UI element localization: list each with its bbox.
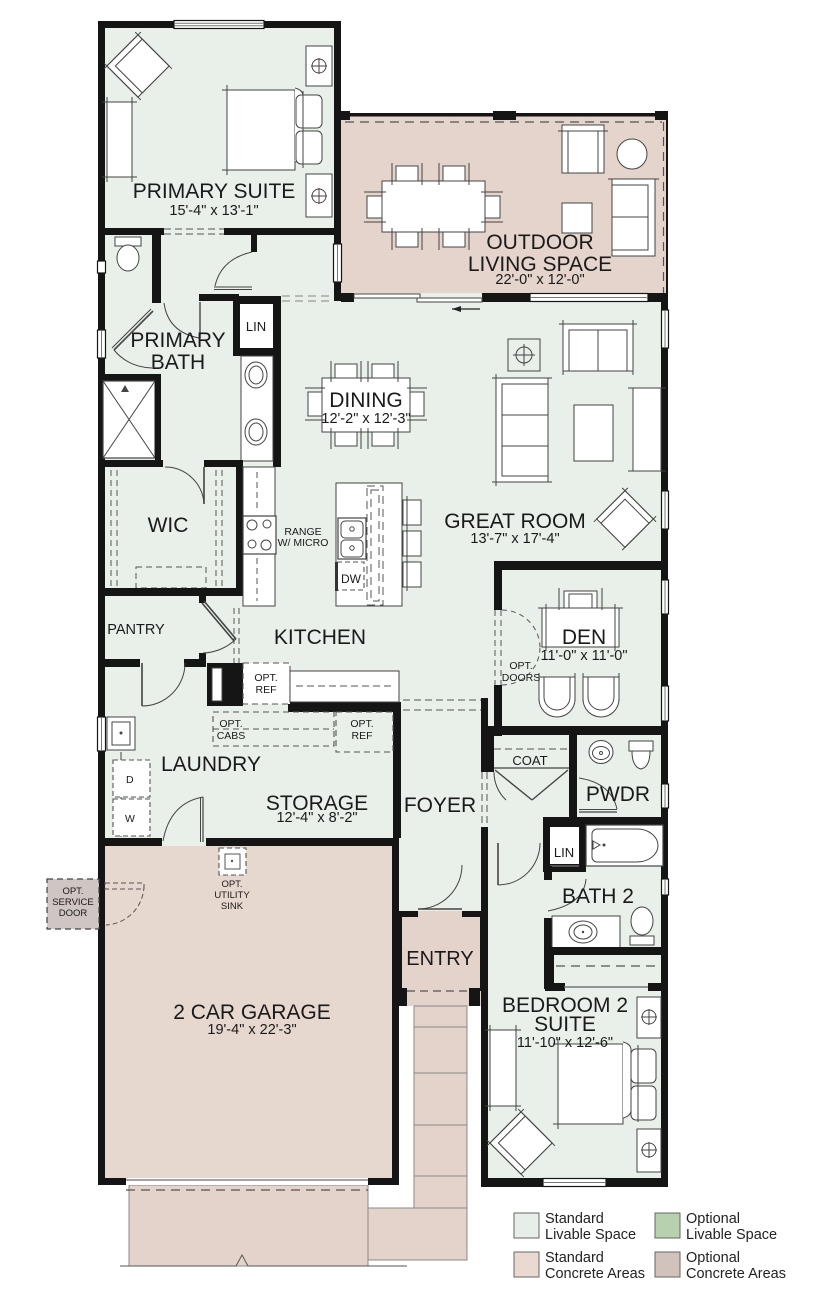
svg-text:OPT.: OPT. (62, 886, 83, 897)
svg-text:LIN: LIN (554, 845, 574, 860)
svg-text:PANTRY: PANTRY (107, 622, 165, 638)
svg-text:OPT.: OPT. (350, 718, 373, 730)
svg-text:OPT.: OPT. (254, 672, 277, 684)
svg-text:BATH: BATH (151, 351, 205, 374)
svg-text:ENTRY: ENTRY (406, 948, 473, 970)
svg-text:Concrete Areas: Concrete Areas (545, 1266, 645, 1282)
svg-text:Standard: Standard (545, 1211, 604, 1227)
svg-text:19'-4" x 22'-3": 19'-4" x 22'-3" (207, 1022, 296, 1038)
svg-text:2 CAR GARAGE: 2 CAR GARAGE (173, 1001, 331, 1024)
svg-text:DOOR: DOOR (59, 908, 88, 919)
svg-text:SERVICE: SERVICE (52, 897, 94, 908)
svg-text:PRIMARY: PRIMARY (130, 329, 225, 352)
svg-text:KITCHEN: KITCHEN (274, 626, 366, 649)
svg-text:Livable Space: Livable Space (686, 1227, 777, 1243)
svg-text:DINING: DINING (329, 389, 403, 412)
svg-text:13'-7" x 17'-4": 13'-7" x 17'-4" (470, 531, 559, 547)
svg-text:11'-0" x 11'-0": 11'-0" x 11'-0" (540, 648, 627, 664)
svg-text:LIN: LIN (246, 319, 266, 334)
svg-text:15'-4" x 13'-1": 15'-4" x 13'-1" (169, 203, 258, 219)
svg-text:Optional: Optional (686, 1211, 740, 1227)
svg-text:DW: DW (341, 572, 362, 586)
svg-text:W/ MICRO: W/ MICRO (278, 537, 329, 549)
svg-text:COAT: COAT (512, 753, 547, 768)
svg-text:UTILITY: UTILITY (214, 890, 250, 901)
svg-text:Optional: Optional (686, 1250, 740, 1266)
svg-text:WIC: WIC (148, 514, 189, 537)
svg-text:22'-0" x 12'-0": 22'-0" x 12'-0" (495, 272, 584, 288)
svg-text:D: D (126, 774, 134, 786)
svg-text:REF: REF (352, 730, 373, 742)
svg-text:Concrete Areas: Concrete Areas (686, 1266, 786, 1282)
svg-text:GREAT ROOM: GREAT ROOM (444, 510, 586, 533)
svg-text:Livable Space: Livable Space (545, 1227, 636, 1243)
svg-text:FOYER: FOYER (404, 794, 476, 817)
svg-text:12'-4" x 8'-2": 12'-4" x 8'-2" (276, 810, 357, 826)
svg-text:W: W (125, 813, 135, 825)
svg-text:DEN: DEN (562, 626, 606, 649)
svg-text:PRIMARY SUITE: PRIMARY SUITE (133, 180, 296, 203)
svg-text:OPT.: OPT. (509, 660, 532, 672)
svg-text:OPT.: OPT. (219, 718, 242, 730)
svg-text:11'-10" x 12'-6": 11'-10" x 12'-6" (517, 1035, 613, 1051)
svg-text:BATH 2: BATH 2 (562, 885, 634, 908)
svg-text:12'-2" x 12'-3": 12'-2" x 12'-3" (321, 411, 410, 427)
svg-text:SUITE: SUITE (534, 1013, 596, 1036)
svg-text:SINK: SINK (221, 901, 244, 912)
svg-text:OUTDOOR: OUTDOOR (486, 231, 593, 254)
svg-text:CABS: CABS (217, 730, 246, 742)
svg-text:LAUNDRY: LAUNDRY (161, 753, 261, 776)
svg-text:DOORS: DOORS (502, 672, 541, 684)
svg-text:PWDR: PWDR (586, 783, 650, 806)
svg-text:OPT.: OPT. (221, 879, 242, 890)
svg-text:Standard: Standard (545, 1250, 604, 1266)
svg-text:REF: REF (256, 684, 277, 696)
